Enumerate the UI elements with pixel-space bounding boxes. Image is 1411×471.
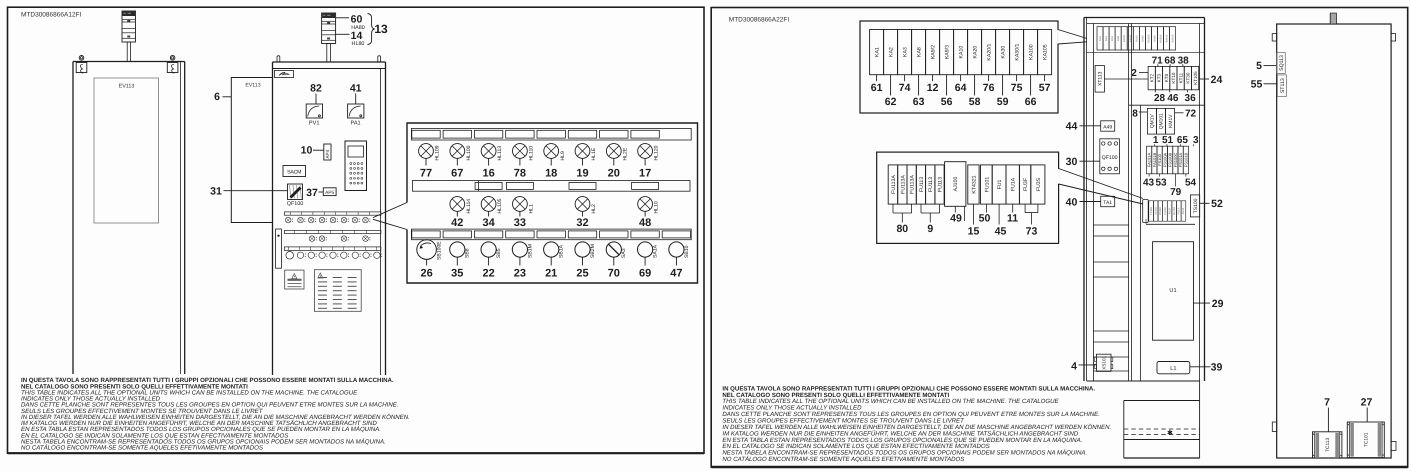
svg-text:55: 55	[1251, 79, 1263, 91]
svg-text:KA100: KA100	[1166, 34, 1169, 42]
svg-text:FS100C: FS100C	[1173, 153, 1178, 168]
svg-text:HL80: HL80	[352, 41, 365, 47]
svg-text:KA8: KA8	[917, 47, 923, 57]
svg-text:16: 16	[482, 168, 494, 180]
svg-text:SACM: SACM	[287, 170, 301, 176]
svg-text:SA1A: SA1A	[653, 244, 659, 258]
svg-text:10: 10	[301, 145, 313, 157]
svg-text:KA9/3: KA9/3	[945, 45, 951, 59]
svg-text:50: 50	[979, 213, 991, 225]
svg-text:FS100A: FS100A	[1162, 152, 1167, 167]
svg-text:HL100: HL100	[466, 145, 472, 160]
svg-text:KA10: KA10	[1135, 35, 1138, 42]
svg-text:PA1: PA1	[351, 121, 361, 127]
svg-text:KA2: KA2	[1105, 35, 1108, 40]
svg-text:HL113: HL113	[497, 146, 503, 161]
svg-text:KA20/1: KA20/1	[987, 43, 993, 60]
svg-text:77: 77	[420, 168, 432, 180]
svg-text:KA9/2: KA9/2	[931, 45, 937, 59]
svg-text:FU113A: FU113A	[891, 175, 897, 194]
svg-text:KM1V: KM1V	[1168, 114, 1174, 128]
svg-text:QF100: QF100	[287, 201, 303, 207]
svg-text:52: 52	[1211, 198, 1223, 210]
svg-text:TC101: TC101	[1364, 432, 1370, 447]
svg-text:AJ10B: AJ10B	[1155, 207, 1158, 215]
svg-text:8: 8	[1132, 109, 1138, 120]
svg-text:FS100B: FS100B	[1168, 152, 1173, 167]
svg-text:HL114: HL114	[466, 199, 472, 214]
svg-text:SB1A: SB1A	[559, 244, 565, 258]
svg-text:61: 61	[871, 82, 883, 94]
svg-text:1: 1	[1153, 135, 1159, 146]
svg-text:25: 25	[576, 267, 588, 279]
svg-text:MTD30086866A12FI: MTD30086866A12FI	[21, 12, 82, 19]
svg-text:FU3F: FU3F	[1168, 207, 1171, 214]
svg-text:TS10B: TS10B	[1150, 207, 1153, 215]
svg-text:KA9/3: KA9/3	[1129, 34, 1132, 42]
svg-text:4: 4	[1071, 361, 1077, 373]
svg-text:57: 57	[1039, 82, 1051, 94]
svg-text:KA2: KA2	[889, 47, 895, 57]
svg-text:KA20: KA20	[1141, 35, 1144, 42]
svg-text:KA3: KA3	[903, 47, 909, 57]
svg-text:42: 42	[451, 217, 463, 229]
svg-text:TS100: TS100	[1193, 198, 1199, 213]
svg-text:43: 43	[1143, 178, 1155, 189]
svg-text:FU113: FU113	[937, 177, 943, 192]
svg-text:HL1E: HL1E	[591, 147, 597, 160]
svg-text:KA1: KA1	[875, 47, 881, 57]
svg-text:QM1V: QM1V	[1150, 114, 1156, 129]
svg-text:69: 69	[639, 267, 651, 279]
svg-text:KA20/1: KA20/1	[1147, 34, 1150, 43]
svg-text:KA30/1: KA30/1	[1015, 43, 1021, 60]
svg-text:26: 26	[420, 267, 432, 279]
svg-text:15: 15	[968, 226, 980, 238]
svg-text:KA30/1: KA30/1	[1160, 34, 1163, 43]
svg-text:31: 31	[210, 186, 222, 198]
svg-text:20: 20	[608, 168, 620, 180]
svg-text:HL2E: HL2E	[622, 147, 628, 160]
svg-text:75: 75	[1011, 82, 1023, 94]
svg-text:73: 73	[1026, 226, 1038, 238]
svg-text:64: 64	[955, 82, 967, 94]
svg-text:KA3: KA3	[1111, 35, 1114, 40]
svg-text:KT2: KT2	[1149, 73, 1154, 82]
svg-text:FU3S: FU3S	[1036, 177, 1042, 191]
svg-text:62: 62	[885, 96, 897, 108]
svg-text:SA3: SA3	[621, 248, 627, 258]
svg-text:5: 5	[1256, 60, 1262, 72]
svg-text:FU113A: FU113A	[900, 175, 906, 194]
svg-text:KT3: KT3	[1157, 73, 1162, 82]
svg-text:NO CATÁLOGO ENCONTRAM-SE SOMEN: NO CATÁLOGO ENCONTRAM-SE SOMENTE AQUELES…	[21, 444, 263, 452]
svg-text:38: 38	[1178, 55, 1190, 66]
svg-text:48: 48	[639, 217, 651, 229]
svg-text:FS101A: FS101A	[1178, 152, 1183, 167]
svg-text:TC113: TC113	[1325, 438, 1331, 452]
svg-text:SB2M: SB2M	[590, 244, 596, 258]
svg-text:46: 46	[1167, 93, 1179, 104]
svg-text:35: 35	[451, 267, 463, 279]
svg-text:51: 51	[1162, 135, 1174, 146]
svg-text:FU1A: FU1A	[1011, 177, 1017, 191]
svg-text:FU113: FU113	[928, 177, 934, 192]
svg-text:EV113: EV113	[245, 83, 260, 89]
svg-text:76: 76	[983, 82, 995, 94]
svg-text:18: 18	[545, 168, 557, 180]
svg-text:KT43E: KT43E	[1159, 207, 1162, 215]
svg-text:28: 28	[1154, 93, 1166, 104]
svg-text:HL105: HL105	[497, 198, 503, 213]
svg-text:KA100: KA100	[1029, 44, 1035, 60]
svg-text:HL110: HL110	[529, 146, 535, 161]
svg-text:✱: ✱	[1167, 429, 1173, 437]
svg-text:39: 39	[1211, 362, 1223, 374]
svg-text:SB8: SB8	[465, 248, 471, 258]
svg-text:SB10: SB10	[684, 245, 690, 258]
svg-text:21: 21	[545, 267, 557, 279]
svg-text:23: 23	[514, 267, 526, 279]
svg-text:L1: L1	[1170, 366, 1176, 372]
svg-text:KA30: KA30	[1153, 35, 1156, 42]
svg-text:PV1: PV1	[309, 121, 320, 127]
svg-text:KA9/2: KA9/2	[1123, 34, 1126, 42]
svg-text:34: 34	[482, 217, 495, 229]
svg-text:66: 66	[1025, 96, 1037, 108]
svg-text:KA30: KA30	[1001, 46, 1007, 59]
svg-text:SB100E: SB100E	[436, 241, 442, 260]
svg-text:FU10S: FU10S	[1173, 207, 1176, 215]
svg-text:72: 72	[1185, 109, 1197, 120]
svg-text:SQ113: SQ113	[1279, 55, 1285, 71]
svg-text:82: 82	[310, 83, 322, 95]
svg-text:2: 2	[1131, 68, 1137, 79]
svg-text:FU35: FU35	[1182, 207, 1185, 214]
svg-text:SB5: SB5	[496, 248, 502, 258]
svg-text:80: 80	[896, 223, 908, 235]
svg-text:MTD30086866A22FI: MTD30086866A22FI	[729, 17, 790, 24]
svg-text:AP4: AP4	[325, 149, 330, 158]
svg-text:40: 40	[1066, 197, 1078, 209]
svg-text:ST113: ST113	[1280, 78, 1286, 93]
svg-text:AJ100: AJ100	[953, 177, 959, 192]
svg-text:HL109: HL109	[435, 145, 441, 160]
svg-text:KA20: KA20	[973, 46, 979, 59]
svg-text:33: 33	[514, 217, 526, 229]
svg-text:32: 32	[576, 217, 588, 229]
svg-text:NO CATÁLOGO ENCONTRAM-SE SOMEN: NO CATÁLOGO ENCONTRAM-SE SOMENTE AQUELES…	[722, 455, 964, 463]
svg-text:71: 71	[1152, 55, 1164, 66]
svg-text:29: 29	[1212, 298, 1224, 310]
svg-text:24: 24	[1211, 74, 1223, 86]
svg-text:KA105: KA105	[1043, 44, 1049, 60]
svg-text:44: 44	[1066, 121, 1078, 133]
svg-text:7: 7	[1324, 397, 1330, 409]
svg-text:KT10: KT10	[1171, 72, 1176, 83]
svg-text:FS101B: FS101B	[1183, 152, 1188, 167]
svg-text:TA1: TA1	[1103, 200, 1112, 206]
svg-text:19: 19	[576, 168, 588, 180]
svg-text:22: 22	[482, 267, 494, 279]
svg-text:AP5: AP5	[325, 190, 334, 196]
svg-text:63: 63	[913, 96, 925, 108]
svg-text:56: 56	[941, 96, 953, 108]
svg-text:QM101: QM101	[1159, 113, 1165, 129]
svg-text:EV113: EV113	[119, 84, 135, 90]
svg-text:53: 53	[1155, 178, 1167, 189]
svg-text:6: 6	[214, 91, 220, 103]
svg-text:KA1: KA1	[1099, 35, 1102, 40]
svg-text:HL1: HL1	[529, 204, 535, 214]
svg-text:67: 67	[451, 168, 463, 180]
svg-text:49: 49	[950, 213, 962, 225]
svg-text:KT11: KT11	[1178, 72, 1183, 83]
svg-text:FU113A: FU113A	[910, 175, 916, 194]
svg-text:QF100: QF100	[1102, 155, 1118, 161]
svg-text:30: 30	[1066, 156, 1078, 168]
svg-text:78: 78	[514, 168, 526, 180]
svg-text:59: 59	[997, 96, 1009, 108]
svg-text:79: 79	[1170, 187, 1182, 198]
svg-text:70: 70	[608, 267, 620, 279]
svg-text:74: 74	[899, 82, 911, 94]
svg-text:XT113: XT113	[1098, 71, 1104, 86]
svg-text:45: 45	[995, 226, 1007, 238]
svg-text:KT30: KT30	[1186, 72, 1191, 83]
svg-text:SB1M: SB1M	[527, 244, 533, 258]
svg-text:58: 58	[969, 96, 981, 108]
svg-text:HL120: HL120	[654, 145, 660, 160]
svg-text:HL9: HL9	[560, 151, 566, 161]
svg-text:60: 60	[351, 14, 363, 26]
svg-text:KA10: KA10	[959, 46, 965, 59]
svg-text:KA8: KA8	[1117, 35, 1120, 40]
svg-text:27: 27	[1361, 397, 1373, 409]
svg-text:FU101: FU101	[984, 177, 990, 193]
svg-text:11: 11	[1007, 213, 1018, 225]
svg-text:FA101B: FA101B	[1152, 153, 1157, 168]
svg-text:47: 47	[670, 267, 682, 279]
svg-text:65: 65	[1177, 135, 1189, 146]
svg-text:36: 36	[1185, 93, 1197, 104]
svg-text:FA101A: FA101A	[1147, 153, 1152, 168]
svg-text:HL10: HL10	[654, 201, 660, 213]
svg-text:KT8: KT8	[1164, 73, 1169, 82]
svg-text:KA105: KA105	[1172, 34, 1175, 42]
svg-text:KT4321: KT4321	[971, 175, 977, 193]
svg-text:9: 9	[927, 223, 933, 235]
svg-text:FS100: FS100	[1157, 153, 1162, 166]
svg-text:FU1A: FU1A	[1178, 207, 1181, 214]
svg-text:54: 54	[1185, 178, 1197, 189]
svg-text:FU3F: FU3F	[1023, 178, 1029, 191]
svg-text:41: 41	[350, 83, 362, 95]
svg-text:12: 12	[927, 82, 939, 94]
svg-text:U1: U1	[1169, 288, 1176, 294]
svg-text:FU13F: FU13F	[1164, 207, 1167, 215]
svg-text:HL2: HL2	[591, 204, 597, 214]
svg-text:KT105: KT105	[1193, 71, 1198, 85]
svg-text:A49: A49	[1103, 125, 1112, 131]
svg-text:37: 37	[306, 187, 318, 199]
svg-text:17: 17	[639, 168, 651, 180]
svg-text:13: 13	[374, 22, 388, 36]
svg-text:FU113: FU113	[919, 177, 925, 192]
svg-text:XS101: XS101	[1101, 355, 1106, 369]
svg-text:FU1: FU1	[997, 179, 1003, 189]
